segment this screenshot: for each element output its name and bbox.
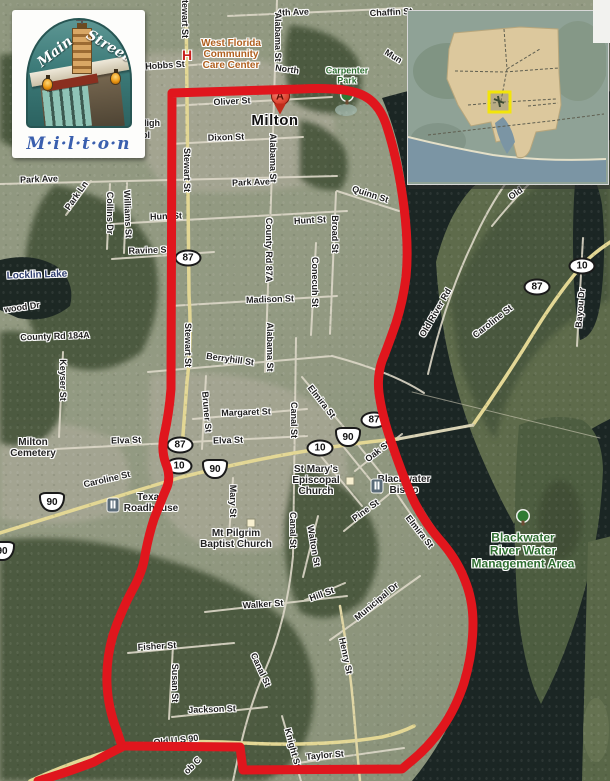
- page-corner-blank: [593, 0, 610, 43]
- logo-weathervane-arm: [76, 19, 88, 21]
- logo-building-windows: [42, 86, 92, 128]
- map-canvas[interactable]: 4th AveChaffin StMunHobbs StNorthOliver …: [0, 0, 610, 781]
- logo-city-name: M·i·l·t·o·n: [12, 134, 145, 154]
- main-street-milton-logo: Main Street M·i·l·t·o·n: [12, 10, 145, 158]
- logo-arch-illustration: Main Street: [26, 18, 132, 128]
- inset-map-art: [408, 11, 606, 182]
- lantern-icon: [110, 72, 121, 85]
- inset-overview-map: [407, 10, 609, 185]
- lantern-icon: [42, 78, 53, 91]
- logo-weathervane: [81, 18, 83, 24]
